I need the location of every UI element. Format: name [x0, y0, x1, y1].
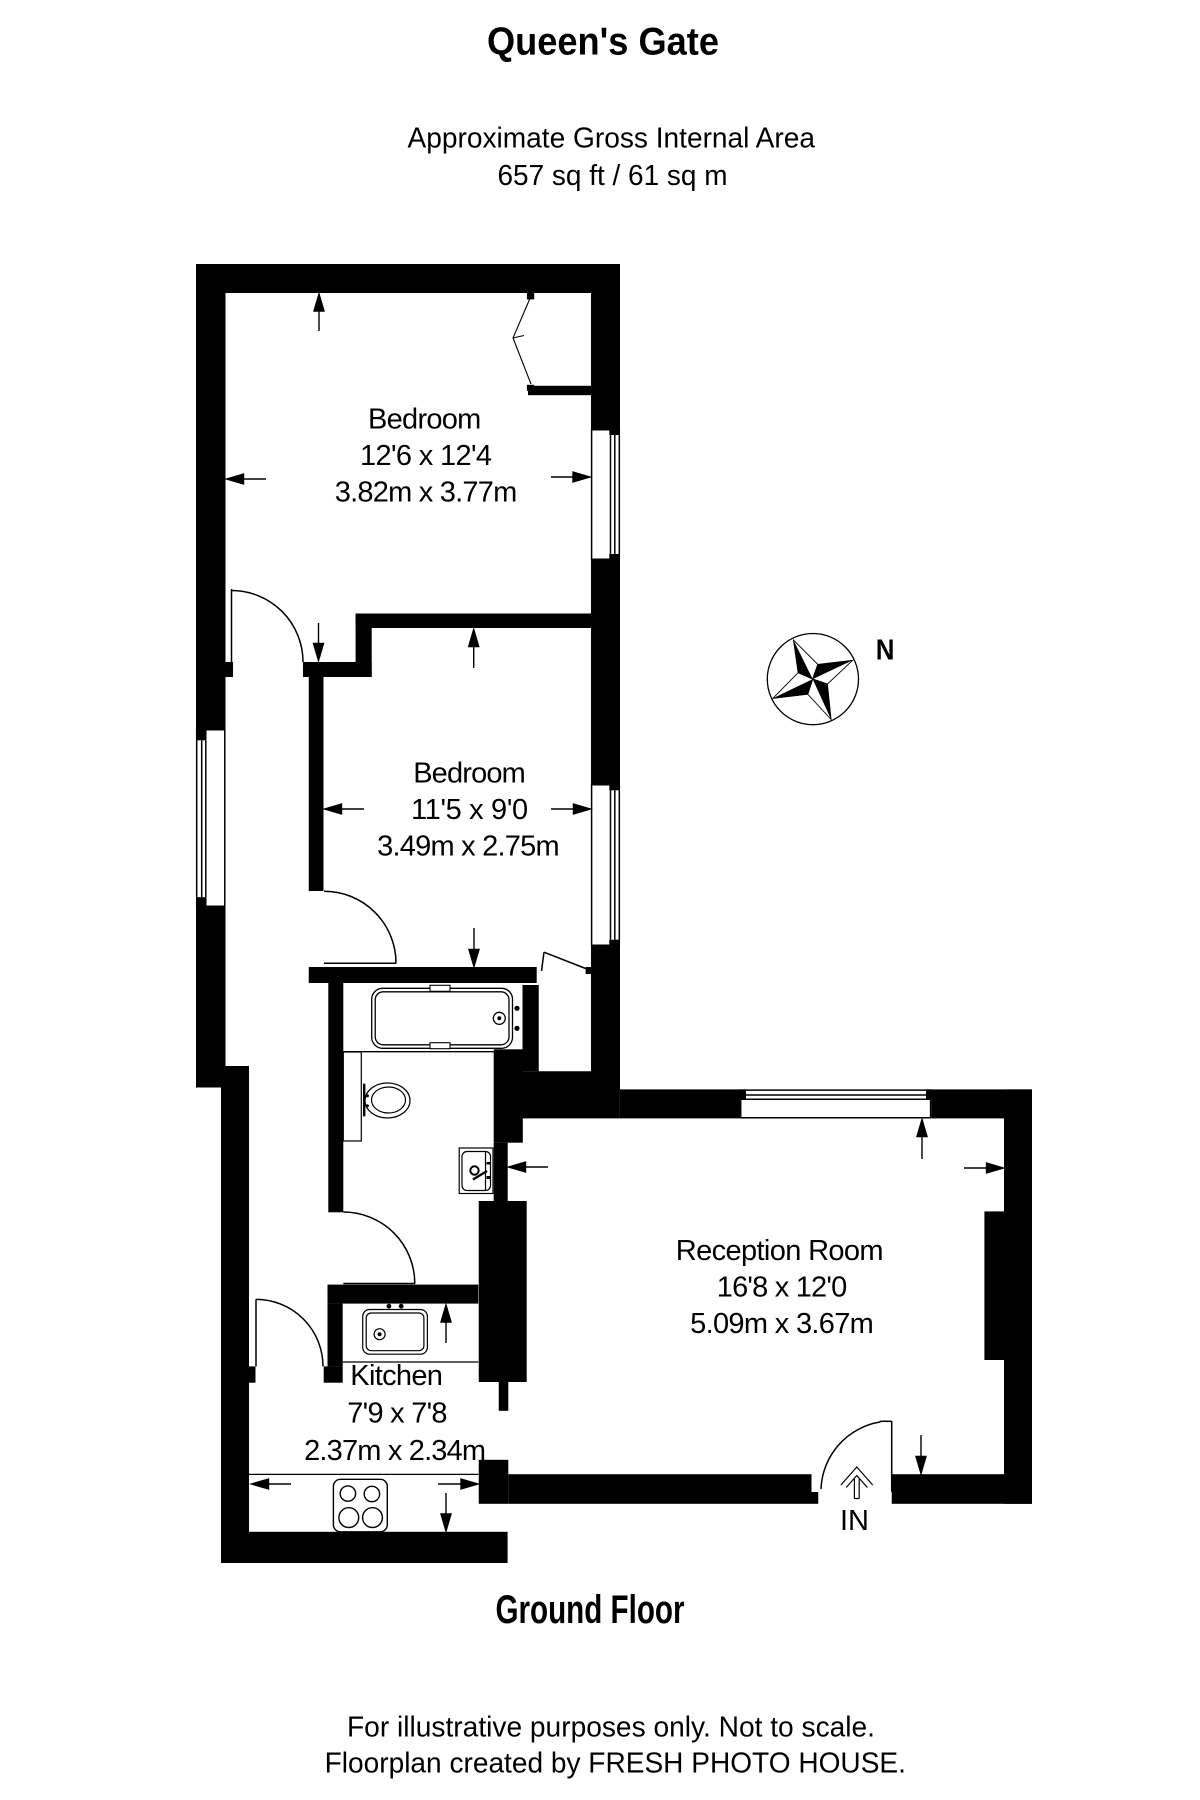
svg-text:Bedroom: Bedroom	[413, 757, 526, 789]
svg-text:Floorplan created by FRESH PHO: Floorplan created by FRESH PHOTO HOUSE.	[325, 1748, 906, 1780]
svg-text:3.82m x 3.77m: 3.82m x 3.77m	[335, 477, 518, 509]
svg-text:3.49m x 2.75m: 3.49m x 2.75m	[377, 831, 560, 863]
svg-text:11'5 x 9'0: 11'5 x 9'0	[411, 794, 528, 826]
svg-text:For illustrative purposes only: For illustrative purposes only. Not to s…	[347, 1712, 875, 1744]
svg-text:12'6 x 12'4: 12'6 x 12'4	[360, 440, 492, 472]
svg-text:Approximate Gross Internal Are: Approximate Gross Internal Area	[408, 123, 816, 155]
svg-text:5.09m x 3.67m: 5.09m x 3.67m	[690, 1308, 874, 1340]
svg-text:Bedroom: Bedroom	[368, 404, 481, 436]
svg-text:657 sq ft / 61 sq m: 657 sq ft / 61 sq m	[498, 160, 728, 192]
svg-text:Ground Floor: Ground Floor	[496, 1588, 685, 1632]
svg-text:Queen's Gate: Queen's Gate	[487, 21, 719, 64]
svg-text:Kitchen: Kitchen	[350, 1360, 443, 1392]
svg-text:IN: IN	[840, 1505, 869, 1537]
svg-text:N: N	[876, 635, 895, 667]
svg-text:7'9 x 7'8: 7'9 x 7'8	[347, 1398, 447, 1430]
svg-text:2.37m x 2.34m: 2.37m x 2.34m	[304, 1435, 486, 1467]
svg-text:Reception Room: Reception Room	[676, 1235, 884, 1267]
svg-text:16'8 x 12'0: 16'8 x 12'0	[717, 1272, 848, 1304]
